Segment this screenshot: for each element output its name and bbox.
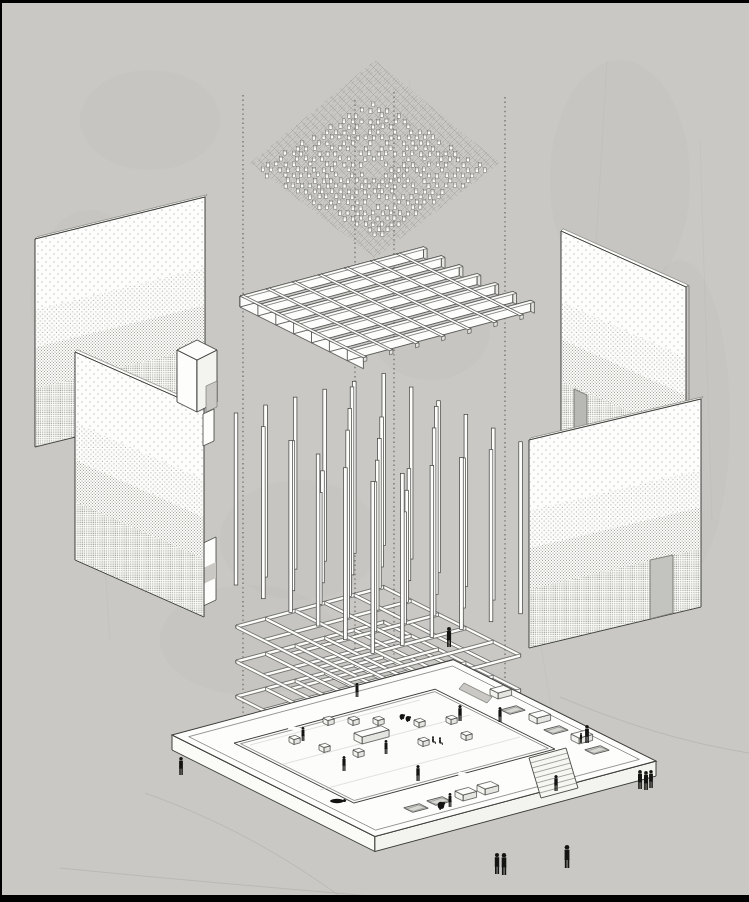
architectural-exploded-axonometric (0, 0, 749, 902)
exploded-axon-drawing (0, 0, 749, 902)
canopy-cloud-layer (250, 60, 500, 258)
facade-panel-front-right (529, 397, 703, 648)
